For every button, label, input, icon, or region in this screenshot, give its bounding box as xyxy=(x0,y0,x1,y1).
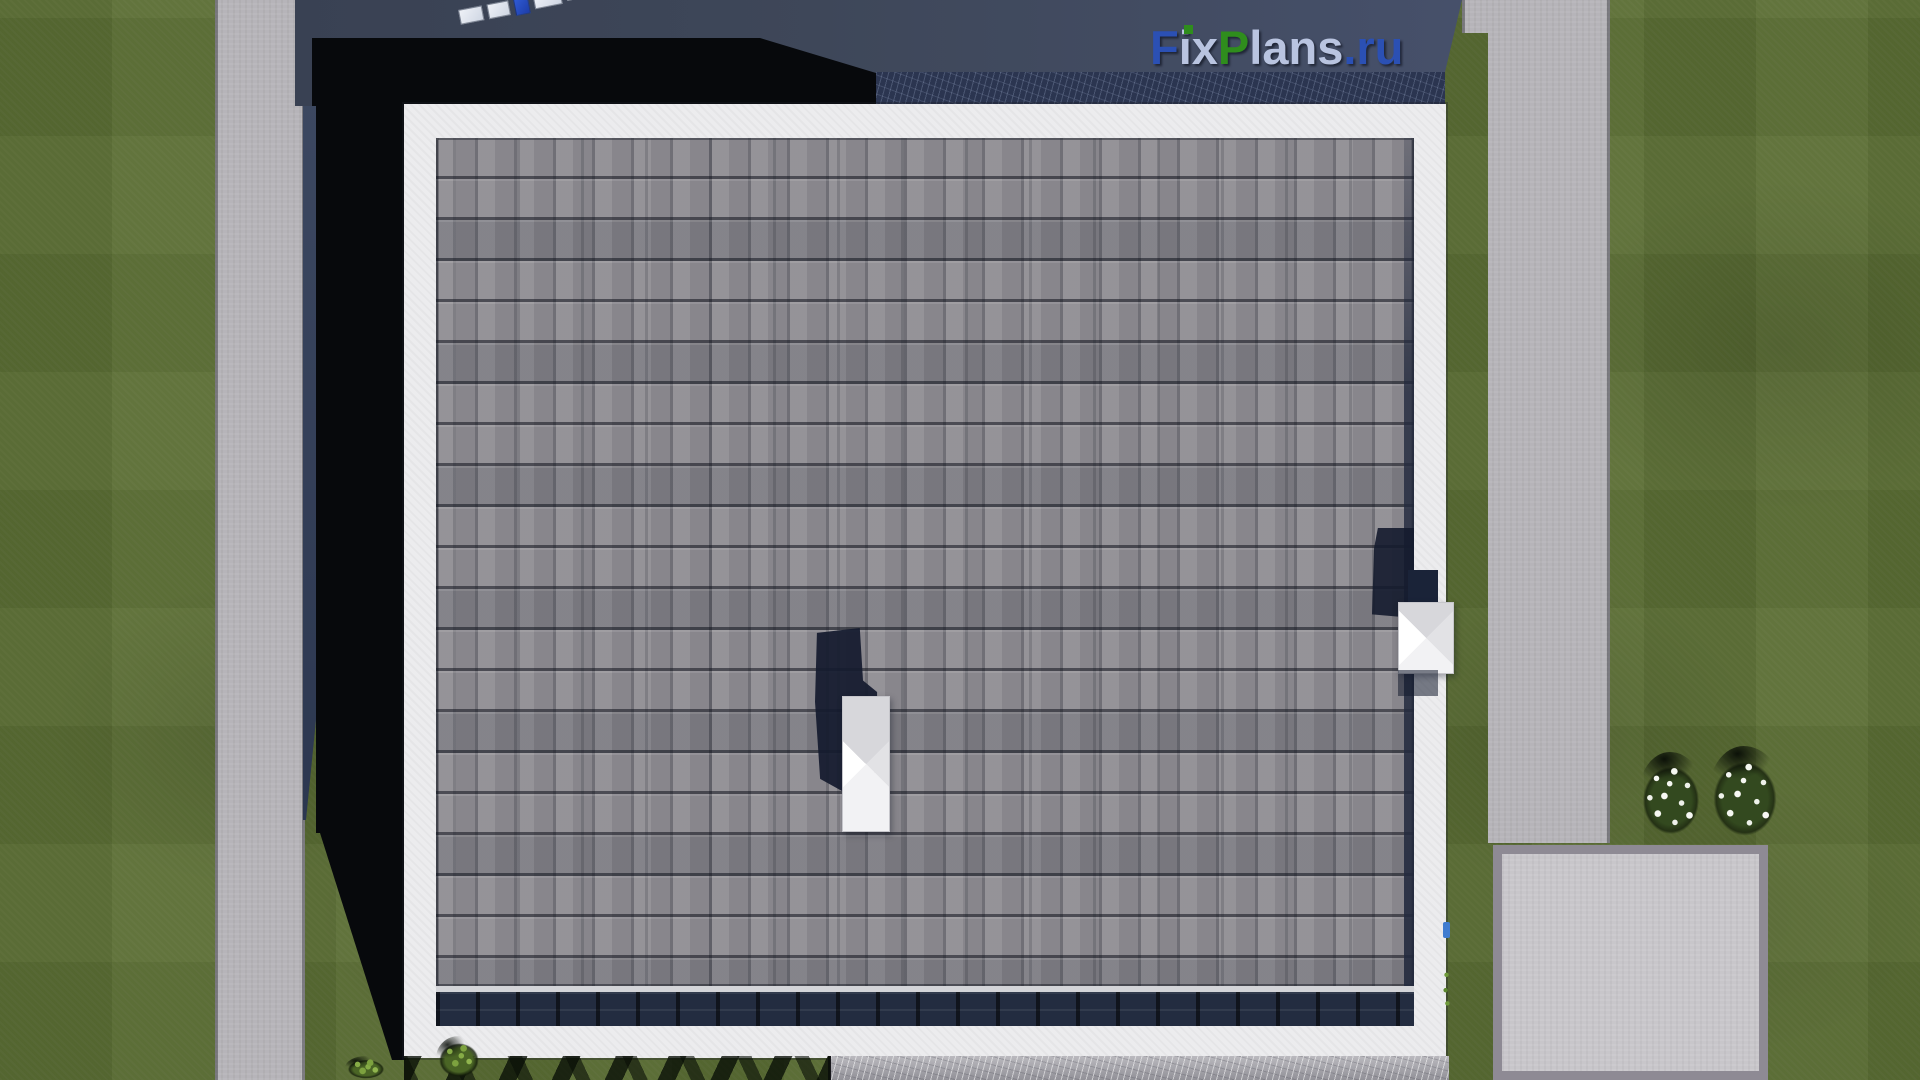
logo-segment: P xyxy=(1218,21,1249,74)
roof-panel-icon xyxy=(458,5,484,24)
logo-segment: F xyxy=(1150,21,1179,74)
plant-speck xyxy=(1442,966,1451,1010)
logo-i-dot xyxy=(1184,25,1193,34)
roof-shingles xyxy=(436,138,1414,986)
house-roof xyxy=(404,104,1446,1058)
roof-panel-icon xyxy=(486,0,510,19)
bush xyxy=(345,1056,387,1080)
roof-panel-blue-icon xyxy=(513,0,531,16)
terrace-strip xyxy=(828,1056,1449,1080)
logo-segment: .ru xyxy=(1343,21,1403,74)
bush xyxy=(436,1036,482,1080)
roof-vent-undershadow xyxy=(1398,670,1438,696)
roof-fascia-shadowed xyxy=(876,72,1445,104)
flower-bush xyxy=(1638,752,1704,840)
ridge-course xyxy=(436,992,1414,1026)
walkway-left xyxy=(215,0,305,1080)
chimney-cap xyxy=(842,696,890,832)
patio xyxy=(1493,845,1768,1080)
plant-speck xyxy=(1443,922,1450,938)
roof-vent-cap xyxy=(1398,602,1454,674)
roof-panel-icon xyxy=(565,0,589,1)
logo-segment: lans xyxy=(1249,21,1343,74)
aerial-render-scene: FixPlans.ru xyxy=(0,0,1920,1080)
watermark-logo: FixPlans.ru xyxy=(1150,24,1403,71)
flower-bush xyxy=(1708,746,1782,842)
